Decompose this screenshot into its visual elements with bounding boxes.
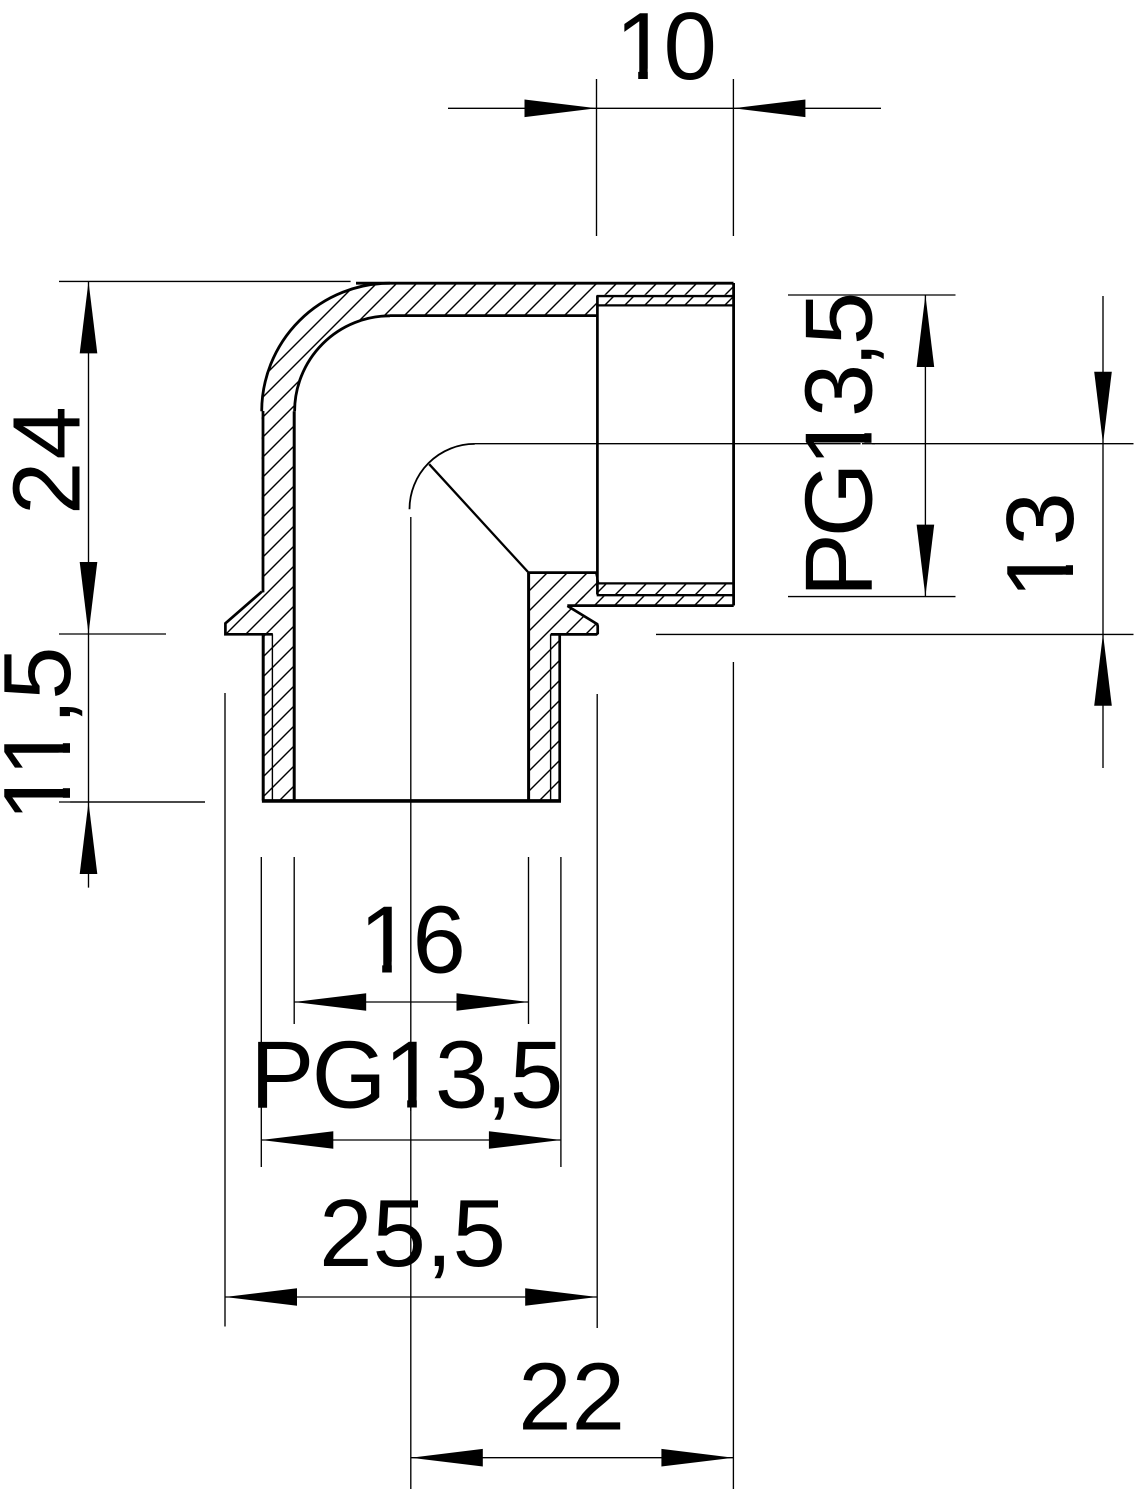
svg-text:PG13,5: PG13,5 bbox=[786, 295, 893, 597]
svg-text:13: 13 bbox=[987, 492, 1094, 599]
svg-text:16: 16 bbox=[359, 887, 466, 994]
svg-text:24: 24 bbox=[0, 404, 101, 515]
svg-text:22: 22 bbox=[518, 1343, 625, 1450]
svg-text:11,5: 11,5 bbox=[0, 648, 91, 822]
svg-text:25,5: 25,5 bbox=[319, 1180, 506, 1287]
svg-text:10: 10 bbox=[615, 0, 713, 100]
svg-text:PG13,5: PG13,5 bbox=[250, 1021, 561, 1128]
